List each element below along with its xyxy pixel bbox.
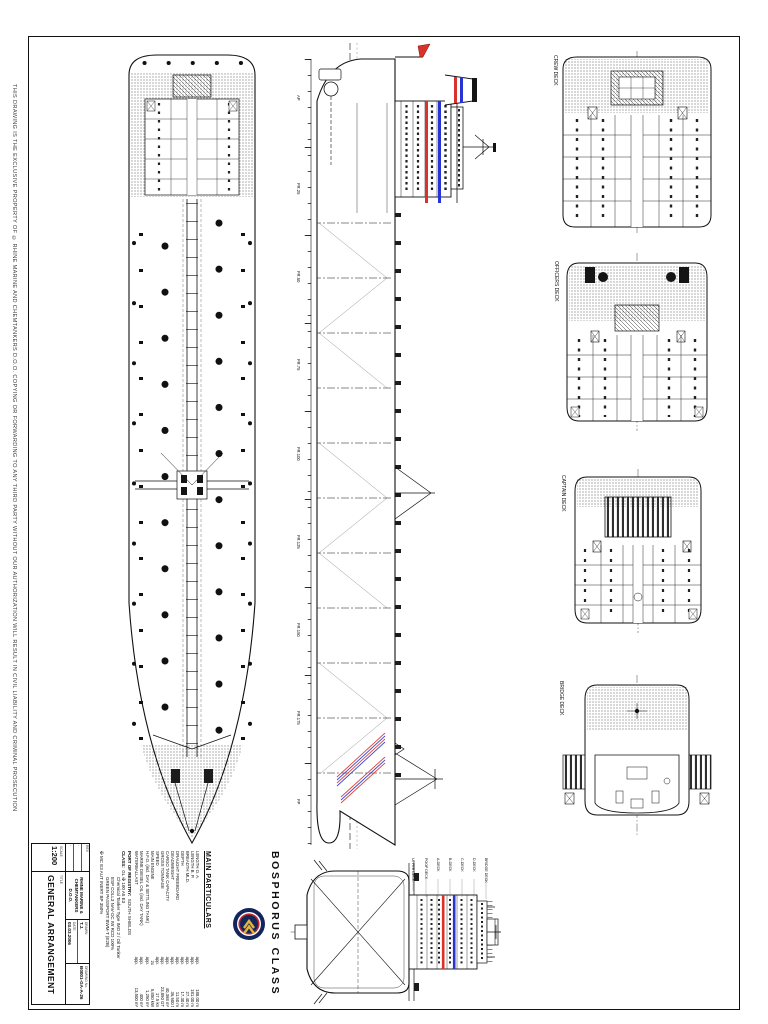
aft-deck-label: A-DECK xyxy=(436,858,440,872)
deck-plan-bridge: BRIDGE DECK xyxy=(557,671,717,839)
particular-row: DRAUGHT FREEBOARDapp.11.50 m xyxy=(175,851,180,1007)
drawing-sheet: CREW DECK OFFICERS DECK xyxy=(28,36,740,1010)
registry-and-class-block: PORT OF REGISTRY: SOUTH SHIELDS CLASS: G… xyxy=(98,851,132,1007)
drawn-date-cell: DRAWNT.J. DATE03.03.2006 xyxy=(66,920,89,964)
particular-row: H.F.O. (incl. DAY & SETTLING TANK)app.1,… xyxy=(144,851,149,1007)
main-deck-plan-view xyxy=(99,43,283,849)
class-notation: ESP COLL3 NAV-OC IW RCD 100% xyxy=(110,851,116,1007)
deck-plan-crew-label: CREW DECK xyxy=(552,55,558,86)
frame-mark: AP xyxy=(296,95,301,101)
main-particulars-table: LENGTH O. A.app.188.00 m LENGTH B. P.app… xyxy=(134,851,200,1007)
particular-row: CARGO TANK CAPACITYapp.40,368 m³ xyxy=(165,851,170,1007)
main-particulars-heading: MAIN PARTICULARS xyxy=(204,851,211,928)
frame-mark: FP xyxy=(296,799,301,805)
particular-row: DEPTHapp.17.30 m xyxy=(180,851,185,1007)
deck-plan-crew: CREW DECK xyxy=(551,49,723,235)
particular-row: WATERBALLASTapp.13,500 m³ xyxy=(134,851,139,1007)
aft-deck-label: BRIDGE DECK xyxy=(484,858,488,883)
frame-mark: FR.175 xyxy=(296,711,301,725)
class-notation: GREEN PASSPORT BWM-T (E2B) xyxy=(104,851,110,1007)
frame-mark: FR.150 xyxy=(296,623,301,637)
livery-stripe-red xyxy=(442,895,445,969)
aft-deck-label: C-DECK xyxy=(460,858,464,872)
class-notation: Chemical Tanker Type IMO 2 / Oil Tanker xyxy=(115,851,121,1007)
particular-row: LENGTH B. P.app.181.00 m xyxy=(190,851,195,1007)
deck-plan-officers: OFFICERS DECK xyxy=(551,251,723,433)
scale-cell: SCALE 1:200 xyxy=(32,844,65,872)
company-name-cell: RHINE MARINE & CHEMTANKERS D.O.O. xyxy=(66,872,89,920)
deck-plan-bridge-label: BRIDGE DECK xyxy=(558,681,564,716)
livery-stripe-blue xyxy=(453,895,456,969)
frame-mark: FR.100 xyxy=(296,447,301,461)
revision-table: REV - - xyxy=(66,844,89,872)
title-block: REV - - RHINE MARINE & CHEMTANKERS D.O.O… xyxy=(31,843,90,1005)
port-of-registry-line: PORT OF REGISTRY: SOUTH SHIELDS xyxy=(126,851,132,1007)
drawing-title: GENERAL ARRANGEMENT xyxy=(46,875,56,1001)
frame-mark: FR.75 xyxy=(296,359,301,371)
particular-row: GROSS TONNAGEapp.23,850 GT xyxy=(160,851,165,1007)
particular-row: MARINE DIESEL OIL (incl. DAY TANK)app.40… xyxy=(139,851,144,1007)
drawing-title-cell: TITLE GENERAL ARRANGEMENT xyxy=(32,872,65,1004)
aft-deck-label: POOP DECK xyxy=(424,858,428,880)
deck-plan-officers-label: OFFICERS DECK xyxy=(553,261,559,302)
particular-row: SPEEDapp.17.5 kn xyxy=(155,851,160,1007)
livery-stripe-blue xyxy=(438,101,441,203)
drawing-sheet-wrapper: CREW DECK OFFICERS DECK xyxy=(28,36,740,1010)
class-name-heading: BOSPHORUS CLASS xyxy=(269,851,281,1007)
aft-elevation-view: BRIDGE DECK D-DECK C-DECK B-DECK A-DECK … xyxy=(287,857,503,1007)
drawing-page: THIS DRAWING IS THE EXCLUSIVE PROPERTY O… xyxy=(0,0,768,1024)
profile-view: CHEMTANKER.ORG xyxy=(285,43,507,849)
particular-row: DEADWEIGHTapp.36,500 t xyxy=(170,851,175,1007)
deck-plan-captain-label: CAPTAIN DECK xyxy=(560,475,566,512)
company-logo-icon xyxy=(232,907,266,941)
aft-deck-label: B-DECK xyxy=(448,858,452,872)
frame-mark: FR.125 xyxy=(296,535,301,549)
copyright-margin-note: THIS DRAWING IS THE EXCLUSIVE PROPERTY O… xyxy=(11,84,17,744)
particulars-block: BOSPHORUS CLASS MAIN PARTICULARS LENGTH … xyxy=(269,851,281,1007)
particular-row: BREADTH MLD.app.27.40 m xyxy=(185,851,190,1007)
aft-deck-label: UPPER DECK xyxy=(411,858,415,882)
frame-mark: FR.50 xyxy=(296,271,301,283)
particular-row: LENGTH O. A.app.188.00 m xyxy=(195,851,200,1007)
livery-stripe-red xyxy=(425,101,428,203)
ensign-flag-icon xyxy=(418,44,430,57)
drawing-number-cell: DRAWING No. B0001-GA-A-26 xyxy=(66,964,89,1004)
deck-plan-captain: CAPTAIN DECK xyxy=(557,467,719,635)
particular-row: MAIN ENGINE2x5,850 kW xyxy=(150,851,155,1007)
frame-mark: FR.25 xyxy=(296,183,301,195)
aft-deck-label: D-DECK xyxy=(472,858,476,872)
